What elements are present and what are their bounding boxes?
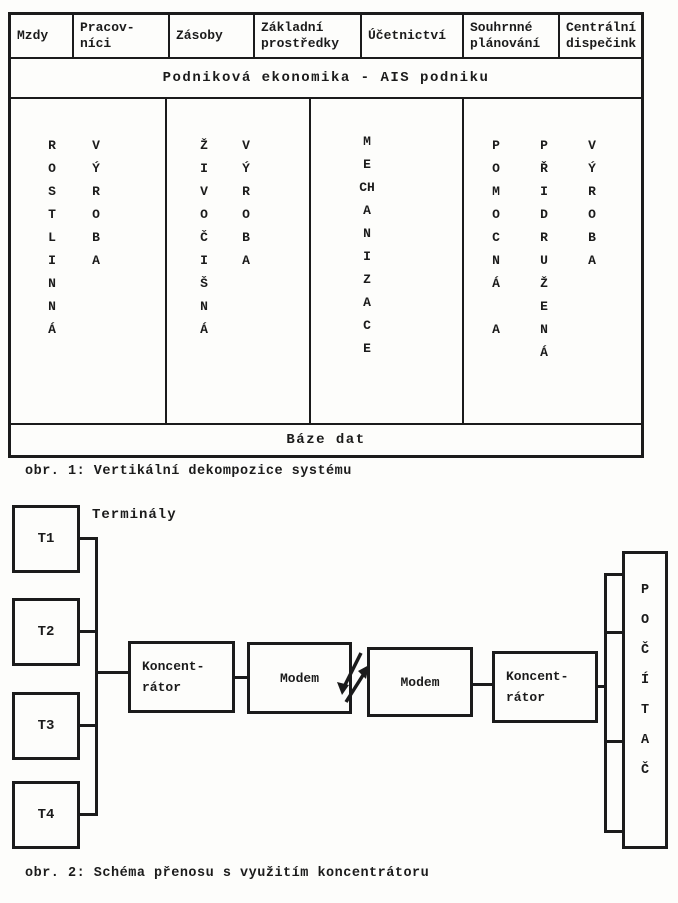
bus-to-concentrator-line [97,671,128,674]
terminal-bus-line [95,537,98,816]
data-base-band: Báze dat [11,423,641,455]
vertical-word-vyroba: V Ý R O B A [235,134,257,272]
decomposition-table: Mzdy Pracov- níci Zásoby Základní prostř… [8,12,644,458]
header-cell-centralni-dispecink: Centrální dispečink [560,15,641,57]
concentrator-left-box: Koncent- rátor [128,641,235,713]
header-cell-ucetnictvi: Účetnictví [362,15,464,57]
header-cell-zakladni-prostredky: Základní prostředky [255,15,362,57]
vertical-word-pridruzena: P Ř I D R U Ž E N Á [533,134,555,364]
vertical-word-zivocisna: Ž I V O Č I Š N Á [193,134,215,341]
header-cell-mzdy: Mzdy [11,15,74,57]
t3-connector-line [80,724,98,727]
header-cell-zasoby: Zásoby [170,15,255,57]
concentrator-right-box: Koncent- rátor [492,651,598,723]
figure1-caption: obr. 1: Vertikální dekompozice systému [25,464,352,479]
terminal-t3-box: T3 [12,692,80,760]
terminal-t4-box: T4 [12,781,80,849]
header-row: Mzdy Pracov- níci Zásoby Základní prostř… [11,15,641,59]
vertical-word-rostlinna: R O S T L I N N Á [41,134,63,341]
column-divider [165,99,167,423]
vertical-word-vyroba: V Ý R O B A [85,134,107,272]
header-cell-souhrnne-planovani: Souhrnné plánování [464,15,560,57]
column-divider [309,99,311,423]
enterprise-economics-banner: Podniková ekonomika - AIS podniku [11,59,641,99]
vertical-word-pomocna-a: P O M O C N Á A [485,134,507,341]
scanned-page: { "colors": { "ink": "#1b1b1b", "paper":… [0,0,678,903]
modem-right-box: Modem [367,647,473,717]
t1-connector-line [80,537,98,540]
terminal-t1-box: T1 [12,505,80,573]
t2-connector-line [80,630,98,633]
table-body: R O S T L I N N Á V Ý R O B A Ž I V O Č … [11,99,641,423]
t4-connector-line [80,813,98,816]
terminals-label: Terminály [92,507,177,523]
computer-box: P O Č Í T A Č [622,551,668,849]
concentrator-modem-link [235,676,247,679]
figure2-caption: obr. 2: Schéma přenosu s využitím koncen… [25,866,429,881]
terminal-t2-box: T2 [12,598,80,666]
column-divider [462,99,464,423]
vertical-word-vyroba: V Ý R O B A [581,134,603,272]
channel-strip-divider [607,631,622,634]
modem-concentrator-link [473,683,492,686]
header-cell-pracovnici: Pracov- níci [74,15,170,57]
vertical-word-mechanizace: M E CH A N I Z A C E [356,130,378,360]
channel-strip-divider [607,740,622,743]
